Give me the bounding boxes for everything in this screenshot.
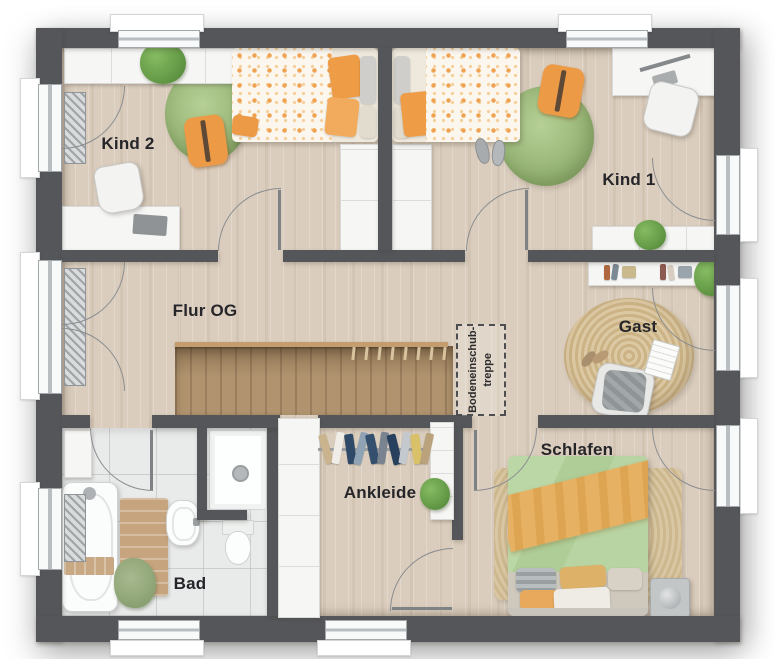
towel-pile: [114, 558, 156, 608]
plant-kind1: [634, 220, 666, 250]
wall-kind2-flur-a: [62, 250, 218, 262]
shower-partition-h: [197, 510, 247, 520]
nightstand-schlafen: [650, 578, 690, 618]
plant-ankleide: [420, 478, 450, 510]
window-schlafen-right: [716, 425, 740, 507]
closet-kind2: [340, 144, 380, 252]
window-sill: [20, 482, 40, 576]
window-sill: [740, 278, 758, 378]
book: [622, 266, 636, 278]
bed-kind2: [232, 48, 378, 142]
door-leaf-schlafen: [474, 430, 477, 490]
stair-annotation-line2: treppe: [481, 327, 496, 413]
wardrobe-ankleide: [278, 418, 320, 618]
shower: [209, 430, 267, 510]
floor-cushion-kind1: [536, 63, 586, 120]
window-sill: [20, 252, 40, 400]
closet-kind1: [392, 144, 432, 252]
window-sill: [317, 640, 411, 656]
wall-gast-schlafen: [538, 415, 714, 428]
cushion-strap: [200, 120, 211, 162]
window-sill: [20, 78, 40, 178]
desk-chair-kind2: [92, 160, 146, 215]
pillow-beige: [608, 568, 642, 590]
shower-head: [232, 465, 249, 482]
window-gast-right: [716, 285, 740, 371]
pillow-orange2-kind2: [324, 96, 360, 137]
blanket-gast: [601, 369, 647, 413]
window-sill: [740, 418, 758, 514]
sink: [166, 500, 200, 546]
book: [678, 266, 692, 278]
window-kind1-top: [566, 30, 648, 48]
door-leaf-kind1: [525, 190, 528, 250]
room-label-kind2: Kind 2: [101, 134, 154, 154]
pillow-mustard: [559, 564, 606, 589]
plant-kind2: [140, 42, 186, 84]
bed-frame: [508, 608, 648, 616]
pillow-gray-kind2: [360, 56, 376, 104]
desk-kind2: [62, 206, 180, 254]
wall-bad-ankleide: [267, 415, 278, 616]
window-sill: [740, 148, 758, 242]
double-bed-schlafen: [508, 456, 648, 616]
window-bad-bottom: [118, 620, 200, 640]
laptop-kind2: [132, 214, 167, 236]
throw-orange-kind2: [232, 114, 259, 137]
toilet: [220, 520, 254, 566]
room-label-kind1: Kind 1: [602, 170, 655, 190]
window-kind1-right: [716, 155, 740, 235]
monitor-kind1: [639, 54, 690, 72]
book: [660, 264, 666, 280]
book: [604, 265, 610, 280]
door-leaf-kind2: [278, 190, 281, 250]
wall-kind2-flur-b: [283, 250, 465, 262]
cabinet-bad: [64, 430, 92, 478]
window-bad-left: [38, 488, 62, 570]
window-flur-left: [38, 260, 62, 394]
room-label-gast: Gast: [619, 317, 658, 337]
room-label-bad: Bad: [174, 574, 207, 594]
wall-flur-bad-a: [62, 415, 90, 428]
window-ankleide-bottom: [325, 620, 407, 640]
wall-gast-top: [528, 250, 714, 262]
radiator-bad: [64, 494, 86, 562]
door-leaf-ankleide: [392, 607, 452, 610]
cushion-strap: [554, 70, 566, 112]
pillow-striped: [516, 568, 556, 592]
nightstand-knob: [659, 587, 681, 609]
floor-cushion-kind2: [183, 113, 230, 168]
window-sill: [110, 640, 204, 656]
room-label-flur: Flur OG: [173, 301, 238, 321]
stair-annotation-box: Bodeneinschub- treppe: [456, 324, 506, 416]
window-kind2-top: [118, 30, 200, 48]
wall-flur-bad-b: [152, 415, 280, 428]
toilet-bowl: [225, 531, 251, 565]
pillow-beige-kind2: [360, 106, 376, 138]
door-leaf-bad: [150, 430, 153, 490]
stair-annotation-line1: Bodeneinschub-: [466, 327, 481, 413]
stair-annotation-text: Bodeneinschub- treppe: [466, 327, 496, 413]
stairwell-opening: [175, 346, 453, 415]
duvet-kind1: [426, 48, 520, 142]
wall-kind2-kind1: [378, 48, 392, 250]
room-label-schlafen: Schlafen: [541, 440, 613, 460]
floor-plan: Bodeneinschub- treppe Kind 2 Kind 1 Flur…: [0, 0, 775, 659]
room-label-ankleide: Ankleide: [344, 483, 416, 503]
shower-partition-v: [197, 428, 207, 520]
bed-kind1: [392, 48, 520, 142]
window-kind2-left: [38, 84, 62, 172]
